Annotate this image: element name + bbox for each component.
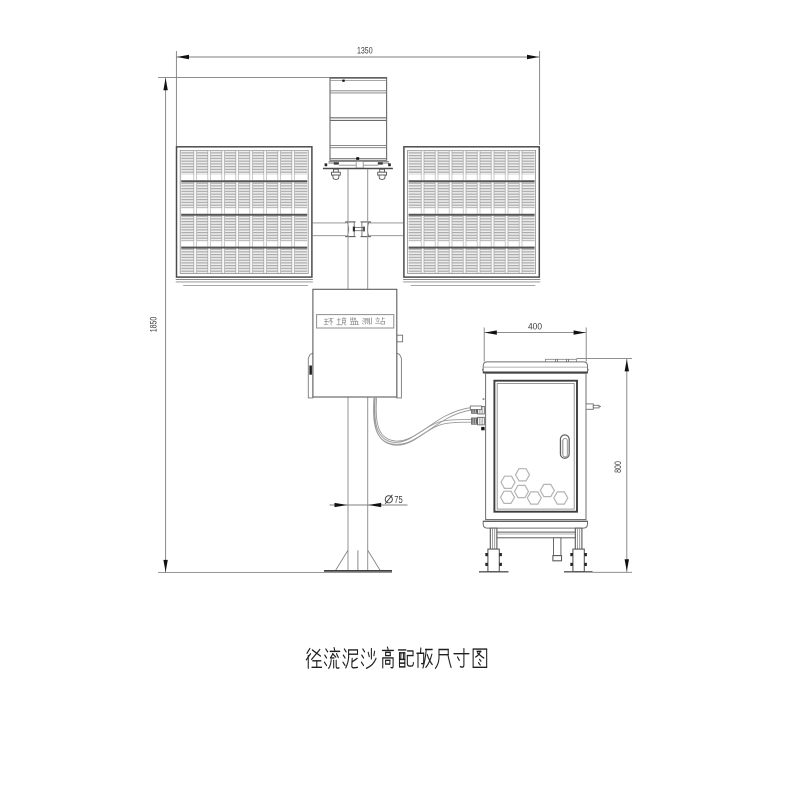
- svg-text:75: 75: [394, 495, 403, 506]
- svg-text:400: 400: [528, 321, 542, 332]
- svg-text:800: 800: [613, 461, 624, 473]
- svg-text:1350: 1350: [357, 46, 373, 57]
- svg-text:1850: 1850: [149, 317, 160, 333]
